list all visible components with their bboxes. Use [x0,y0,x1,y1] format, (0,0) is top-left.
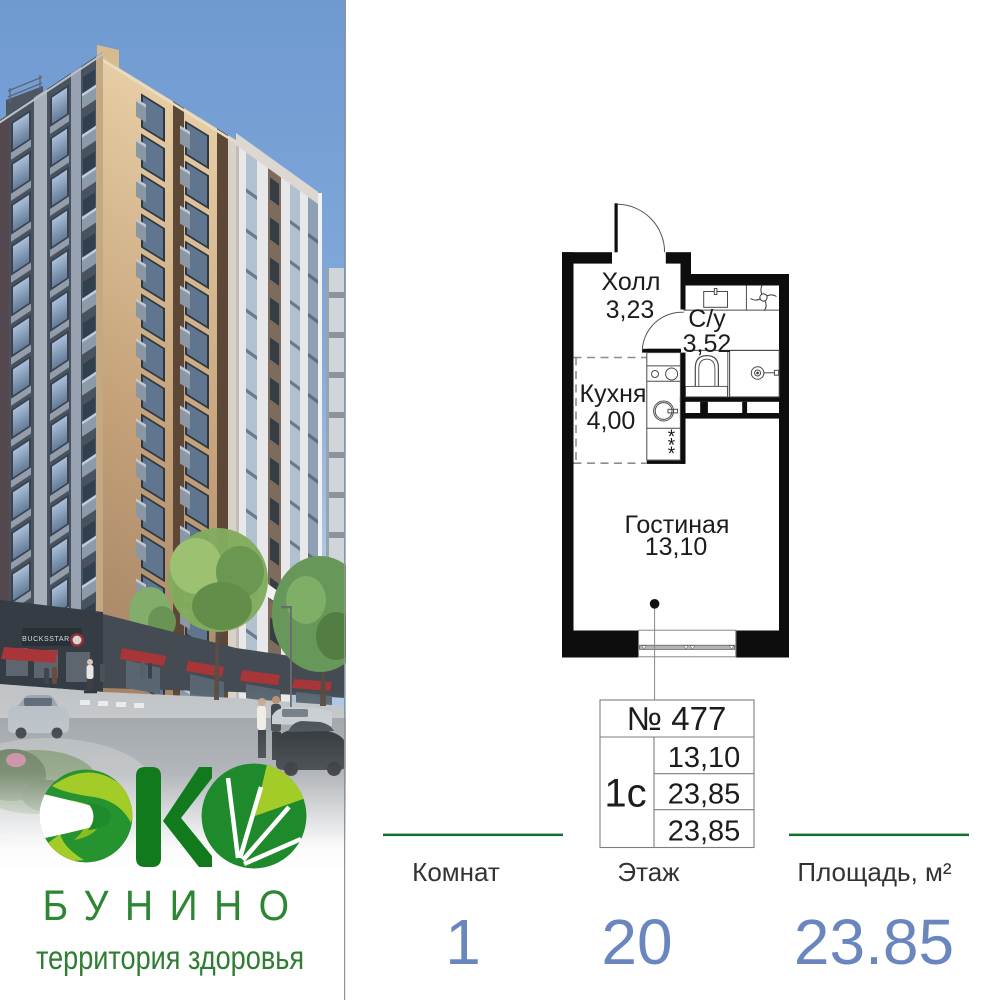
svg-text:БУНИНО: БУНИНО [43,882,306,930]
svg-text:BUCKSSTAR: BUCKSSTAR [22,636,70,643]
svg-text:23,85: 23,85 [668,779,741,811]
svg-text:23,85: 23,85 [668,816,741,848]
svg-text:3,23: 3,23 [606,296,655,324]
svg-text:1с: 1с [604,772,646,816]
svg-text:*: * [668,444,676,465]
svg-text:13,10: 13,10 [645,533,708,561]
svg-text:территория здоровья: территория здоровья [36,939,304,976]
svg-text:С/у: С/у [688,305,726,333]
svg-text:4,00: 4,00 [587,407,636,435]
svg-text:Этаж: Этаж [617,857,680,887]
svg-text:Холл: Холл [602,268,661,296]
svg-text:13,10: 13,10 [668,742,741,774]
svg-text:№ 477: № 477 [627,700,727,737]
svg-text:Площадь, м²: Площадь, м² [797,857,952,887]
svg-text:1: 1 [445,906,481,978]
svg-text:20: 20 [601,906,672,978]
svg-text:23.85: 23.85 [794,906,954,978]
svg-text:3,52: 3,52 [683,330,732,358]
svg-text:Кухня: Кухня [580,380,647,408]
svg-text:Комнат: Комнат [412,857,500,887]
